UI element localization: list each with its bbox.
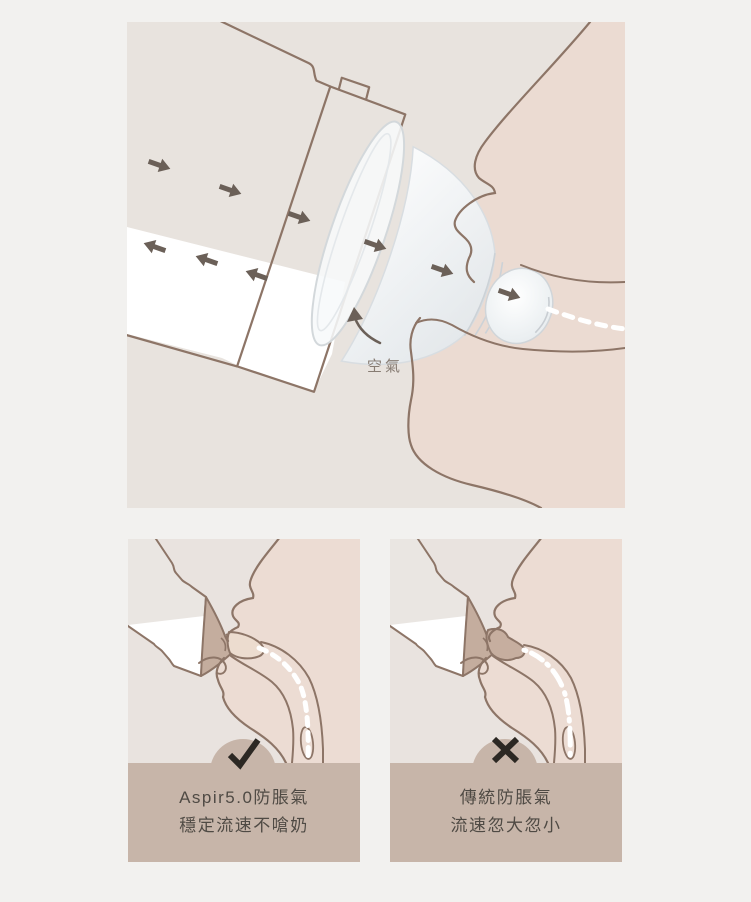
traditional-illustration: 傳統防脹氣 流速忽大忽小 (390, 539, 622, 862)
traditional-comparison-panel: 傳統防脹氣 流速忽大忽小 (390, 539, 622, 862)
caption-background (128, 763, 360, 862)
air-label: 空氣 (367, 358, 403, 375)
airflow-diagram-panel: 空氣 (127, 22, 625, 508)
airflow-diagram: 空氣 (127, 22, 625, 508)
caption-line-1: Aspir5.0防脹氣 (179, 788, 309, 807)
aspir-illustration: Aspir5.0防脹氣 穩定流速不嗆奶 (128, 539, 360, 862)
caption-line-1: 傳統防脹氣 (460, 788, 553, 807)
aspir-comparison-panel: Aspir5.0防脹氣 穩定流速不嗆奶 (128, 539, 360, 862)
caption-background (390, 763, 622, 862)
caption-line-2: 穩定流速不嗆奶 (179, 816, 309, 835)
caption-line-2: 流速忽大忽小 (451, 816, 562, 835)
